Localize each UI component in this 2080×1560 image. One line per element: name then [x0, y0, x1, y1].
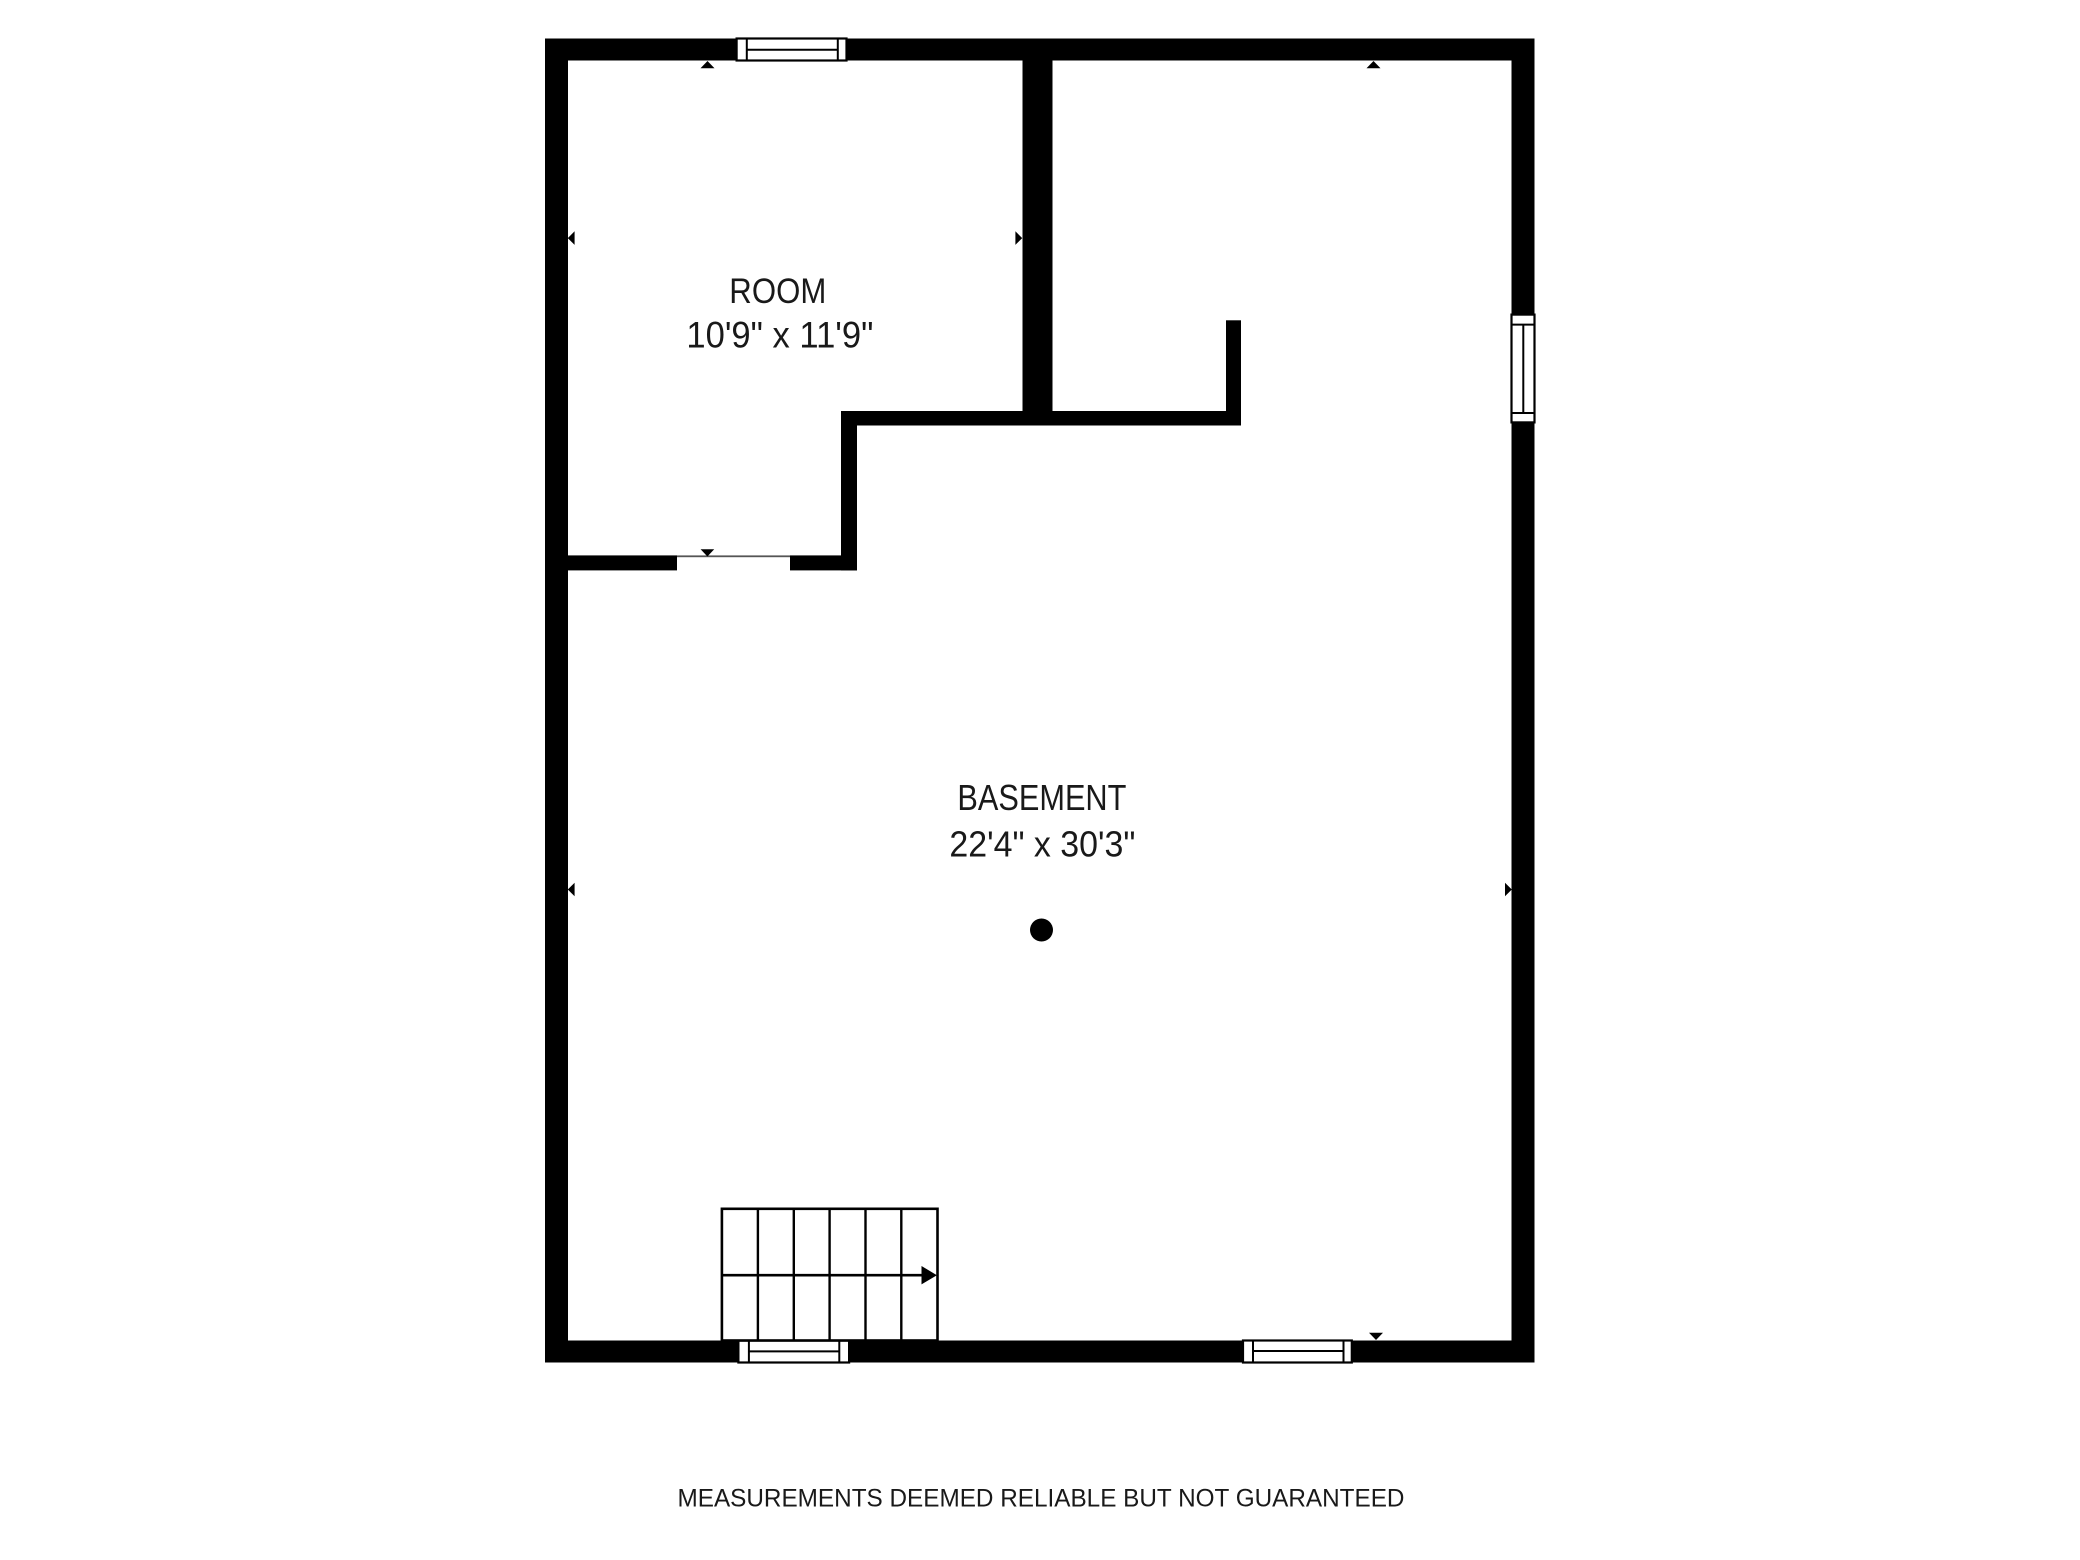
svg-text:ROOM: ROOM: [729, 272, 826, 311]
svg-text:10'9" x 11'9": 10'9" x 11'9": [686, 315, 873, 356]
svg-text:22'4" x 30'3": 22'4" x 30'3": [949, 824, 1135, 865]
svg-text:BASEMENT: BASEMENT: [957, 777, 1126, 818]
svg-text:MEASUREMENTS DEEMED RELIABLE B: MEASUREMENTS DEEMED RELIABLE BUT NOT GUA…: [678, 1486, 1405, 1513]
